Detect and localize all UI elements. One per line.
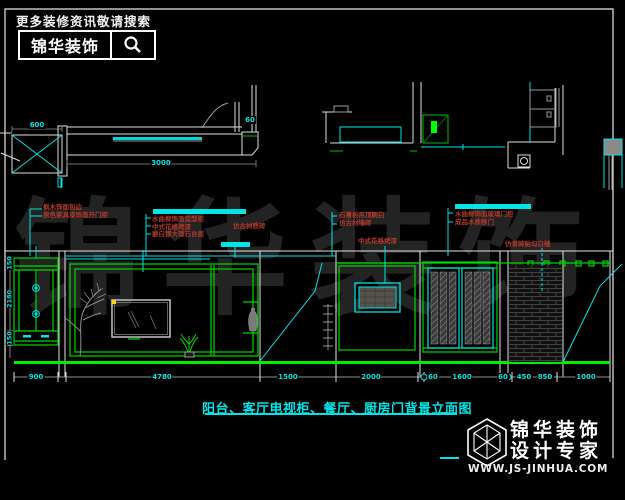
- dim-label: 4780: [151, 373, 172, 381]
- annotation-brick-wall: 仿青砖贴勾白缝: [505, 241, 551, 249]
- dim-label: 1500: [277, 373, 298, 381]
- dim-label: 600: [29, 121, 46, 129]
- search-tagline: 更多装修资讯敬请搜索: [16, 11, 151, 30]
- annotation-balcony-cabinet: 枫木饰面包边 原色家具漆饰面开门柜: [43, 204, 108, 219]
- tick-detail: [323, 304, 333, 350]
- cad-screenshot: 锦华装饰: [0, 0, 625, 500]
- sheet-frame: [5, 9, 613, 460]
- picture-frame: [355, 283, 400, 312]
- dim-label: 2180: [7, 290, 14, 308]
- dim-label: 850: [537, 373, 554, 381]
- elevation-view: [5, 251, 613, 377]
- brick-wall: [509, 265, 562, 362]
- dim-label: 60: [244, 116, 256, 124]
- vase: [249, 311, 258, 331]
- tv-screen: [112, 300, 170, 337]
- footer-website-link[interactable]: WWW.JS-JINHUA.COM: [468, 463, 608, 475]
- dim-label: 2000: [360, 373, 381, 381]
- annotation-tv-wall: 水曲柳饰面造型柜 中式花格烤漆 爵白银大理石台面: [152, 216, 204, 239]
- dim-label: 150: [7, 331, 14, 345]
- search-icon[interactable]: [110, 32, 154, 58]
- plan-section-views: [0, 82, 622, 190]
- annotation-tile: 仿古材质砖: [233, 223, 266, 231]
- drawing-caption: 阳台、客厅电视柜、餐厅、厨房门背景立面图: [202, 398, 460, 417]
- footer-brand-slogan: 设计专家: [510, 441, 602, 462]
- dim-label: 3000: [150, 159, 171, 167]
- annotation-kitchen-door: 水曲柳饰面玻璃门柜 成品木质移门: [455, 211, 514, 226]
- dim-label: 1000: [575, 373, 596, 381]
- dim-label: 450: [516, 373, 533, 381]
- search-banner-box[interactable]: 锦华装饰: [18, 30, 156, 60]
- dim-label: 150: [7, 256, 14, 270]
- annotation-lattice: 中式花格烤漆: [358, 238, 397, 246]
- dim-label: 900: [28, 373, 45, 381]
- brand-logo-text: 锦华装饰: [20, 32, 110, 58]
- footer-brand-name[interactable]: 锦华装饰: [510, 420, 602, 441]
- dim-label: 60: [427, 373, 439, 381]
- plant: [180, 334, 198, 357]
- annotation-ceiling: 石膏板吊顶刷白 仿古材墙砖: [339, 212, 385, 227]
- dim-label: 1600: [451, 373, 472, 381]
- dim-label: 60: [497, 373, 509, 381]
